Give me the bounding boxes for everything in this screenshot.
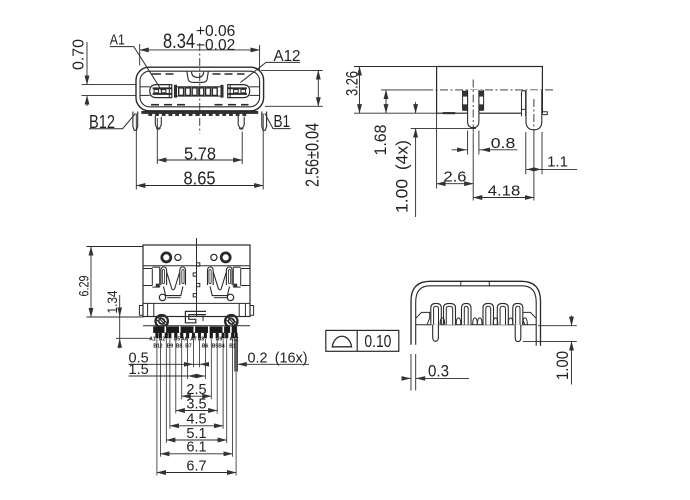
svg-text:B12: B12 <box>153 344 162 350</box>
svg-text:5.78: 5.78 <box>184 143 216 163</box>
svg-text:0.2 (16x): 0.2 (16x) <box>248 350 308 367</box>
svg-text:8.34: 8.34 <box>163 30 195 53</box>
svg-text:A6: A6 <box>181 337 188 343</box>
svg-text:6.29: 6.29 <box>77 276 92 297</box>
svg-text:0.10: 0.10 <box>364 331 391 351</box>
svg-text:2.6: 2.6 <box>444 169 467 186</box>
svg-text:6.7: 6.7 <box>186 458 206 474</box>
svg-text:3.26: 3.26 <box>344 71 362 96</box>
svg-text:8.65: 8.65 <box>184 167 216 188</box>
svg-text:B4: B4 <box>218 344 225 350</box>
svg-text:1.68: 1.68 <box>372 125 390 156</box>
svg-text:A1: A1 <box>149 337 156 343</box>
svg-text:1.34: 1.34 <box>105 290 120 313</box>
svg-text:A1: A1 <box>110 31 125 48</box>
svg-text:A2: A2 <box>159 337 166 343</box>
svg-text:A8: A8 <box>198 337 205 343</box>
svg-text:0.70: 0.70 <box>71 39 88 70</box>
svg-text:B7: B7 <box>185 344 192 350</box>
svg-text:1.5: 1.5 <box>129 362 149 378</box>
svg-text:0.3: 0.3 <box>428 362 449 381</box>
svg-text:3.5: 3.5 <box>186 396 206 412</box>
svg-text:6.1: 6.1 <box>186 440 206 456</box>
svg-text:2.56±0.04: 2.56±0.04 <box>303 123 323 187</box>
svg-text:4.18: 4.18 <box>488 182 521 199</box>
svg-text:1.1: 1.1 <box>547 153 568 170</box>
svg-text:1.00: 1.00 <box>554 351 572 380</box>
svg-text:A9: A9 <box>216 337 223 343</box>
svg-text:A5: A5 <box>174 337 181 343</box>
svg-text:0.8: 0.8 <box>491 135 516 152</box>
svg-text:−0.02: −0.02 <box>196 37 235 54</box>
svg-text:1.00 (4x): 1.00 (4x) <box>393 140 412 213</box>
svg-text:B1: B1 <box>274 111 291 131</box>
